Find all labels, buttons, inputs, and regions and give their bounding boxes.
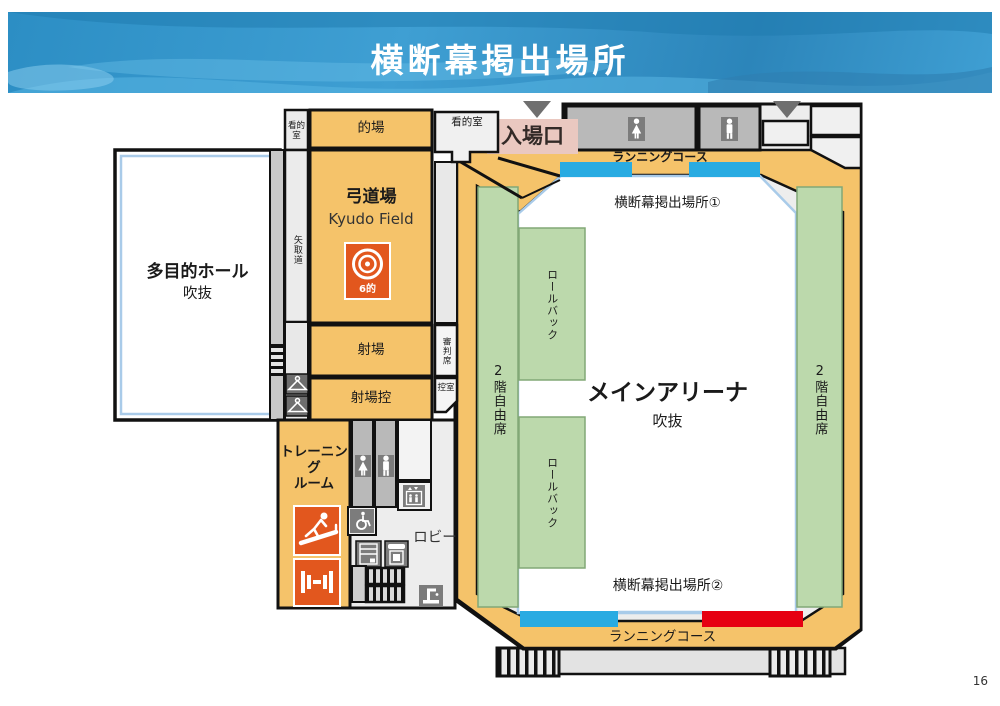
multipurpose-hall: [115, 150, 280, 420]
seats-right-label: 2階自由席: [797, 320, 842, 480]
kanteki-right-label: 看的室: [437, 114, 497, 130]
judges-seat-label: 審判席: [435, 328, 457, 374]
training-room-label: トレーニング ルーム: [278, 447, 350, 489]
rollback-upper-label: ロールバック: [519, 255, 585, 355]
stairs-icon: [497, 648, 559, 676]
slide-page: 横断幕掲出場所: [0, 0, 1000, 706]
six-targets-label: 6的: [345, 283, 390, 296]
kyudo-field-label-jp: 弓道場: [310, 186, 432, 208]
running-course-top-label: ランニングコース: [575, 150, 745, 164]
stairs-icon: [270, 345, 284, 375]
banner-bar-bottom-blue: [520, 611, 618, 627]
page-number: 16: [952, 672, 988, 690]
stairs-icon: [366, 586, 404, 602]
main-arena-label: メインアリーナ: [560, 380, 775, 408]
kanteki-left-label: 看的室: [286, 112, 307, 150]
banner-bar-top-left: [560, 162, 632, 177]
lobby-label: ロビー: [400, 530, 470, 548]
multipurpose-hall-note: 吹抜: [115, 286, 280, 304]
waiting-room-label: 控室: [435, 381, 457, 396]
banner-spot-2-label: 横断幕掲出場所②: [588, 578, 748, 595]
banner-bar-bottom-red: [702, 611, 803, 627]
main-arena-note: 吹抜: [560, 412, 775, 430]
shajo-label: 射場: [310, 340, 432, 360]
exterior-steps: [497, 648, 845, 676]
running-course-bottom-label: ランニングコース: [565, 629, 760, 646]
banner-bar-top-right: [689, 162, 760, 177]
kyudo-field-label-en: Kyudo Field: [310, 210, 432, 228]
utility-room: [763, 121, 808, 145]
shajo-waiting-label: 射場控: [310, 389, 432, 407]
banner-spot-1-label: 横断幕掲出場所①: [590, 195, 745, 211]
seats-left-label: 2階自由席: [478, 320, 518, 480]
yatorimichi-label: 矢取道: [285, 222, 308, 278]
stairs-icon: [770, 648, 830, 676]
matoba-label: 的場: [310, 118, 432, 138]
rollback-lower-label: ロールバック: [519, 443, 585, 543]
stairs-icon: [366, 568, 404, 584]
utility-room: [811, 106, 861, 135]
entrance-arrow-icon: [523, 101, 551, 118]
multipurpose-hall-label: 多目的ホール: [115, 261, 280, 283]
entrance-label: 入場口: [487, 121, 578, 153]
